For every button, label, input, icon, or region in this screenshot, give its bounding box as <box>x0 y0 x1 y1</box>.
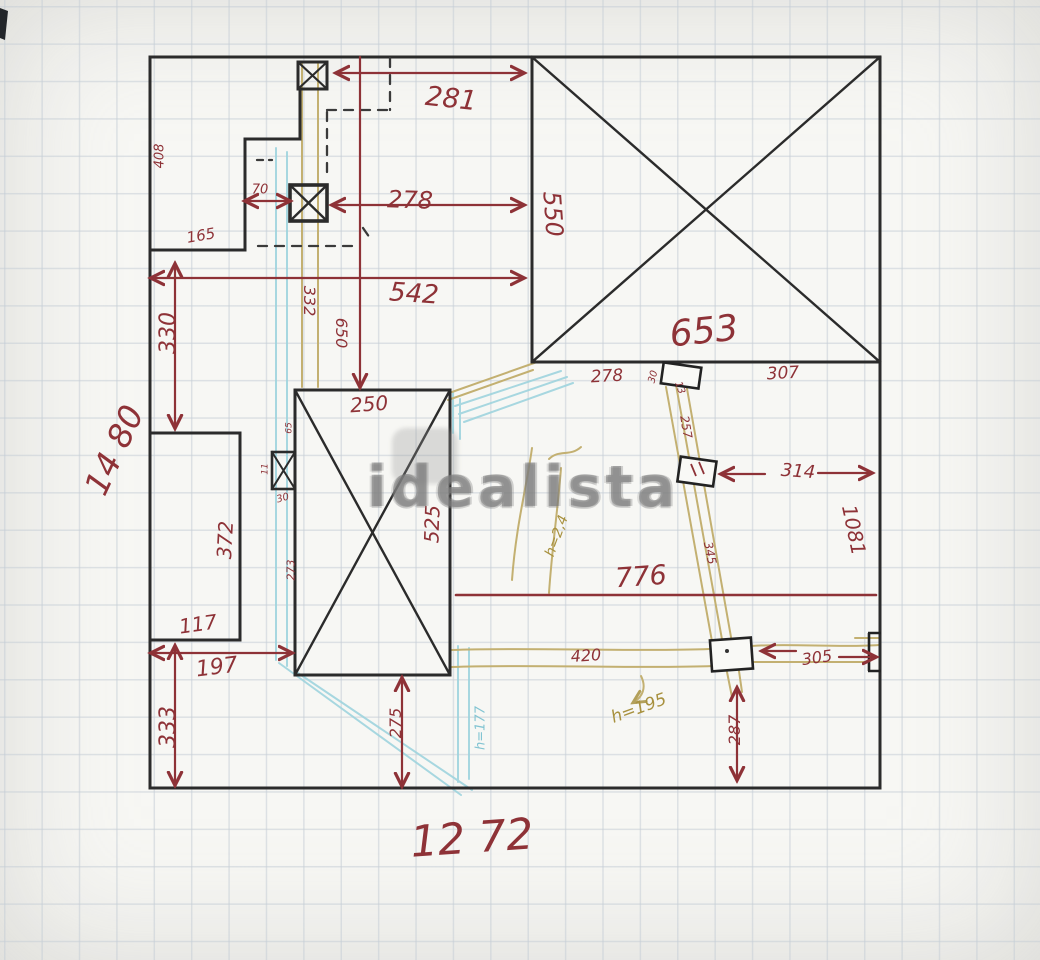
dim-420-label: 420 <box>570 647 602 665</box>
dim-278-top-label: 278 <box>387 187 434 213</box>
dim-333-label: 333 <box>158 706 180 748</box>
beam-box-bottom <box>710 638 753 672</box>
dim-550-label: 550 <box>539 190 566 237</box>
dim-287-label: 287 <box>727 715 743 746</box>
dim-281-label: 281 <box>424 83 478 115</box>
entry-notch-wall <box>150 90 300 250</box>
height-177-label: h=177 <box>475 706 488 750</box>
dim-650-label: 650 <box>333 318 349 349</box>
room-372-label: 372 <box>214 520 236 559</box>
dim-197-label: 197 <box>195 655 239 682</box>
dim-257-label: 257 <box>678 415 694 440</box>
dim-273-label: 273 <box>286 560 297 581</box>
dim-70-label: 70 <box>252 184 269 197</box>
dim-278-bottom-label: 278 <box>590 368 623 387</box>
wall-408-label: 408 <box>154 144 167 169</box>
dim-305-label: 305 <box>801 648 833 668</box>
dim-330-label: 330 <box>158 312 180 354</box>
total-width-1272-label: 12 72 <box>409 813 535 864</box>
dim-11-label: 11 <box>262 463 271 474</box>
room-653-label: 653 <box>668 311 740 354</box>
dim-250-label: 250 <box>349 393 388 416</box>
dim-275-label: 275 <box>388 708 404 739</box>
floorplan-sketch-photo: 281 278 70 165 408 542 332 650 550 653 2… <box>0 0 1040 960</box>
dim-542-label: 542 <box>388 279 439 308</box>
outer-walls <box>150 57 880 788</box>
pillar-mid <box>290 185 327 221</box>
watermark-text: idealista <box>367 454 679 520</box>
photo-corner-smudge <box>0 8 8 40</box>
dim-65-label: 65 <box>286 422 295 433</box>
room-117-label: 117 <box>178 611 219 636</box>
dim-307-label: 307 <box>766 365 799 384</box>
dim-776-label: 776 <box>614 562 667 593</box>
dim-314-label: 314 <box>780 462 816 482</box>
dimension-lines <box>152 57 876 785</box>
dim-332-label: 332 <box>301 286 317 317</box>
beam-box-mid <box>677 457 716 487</box>
